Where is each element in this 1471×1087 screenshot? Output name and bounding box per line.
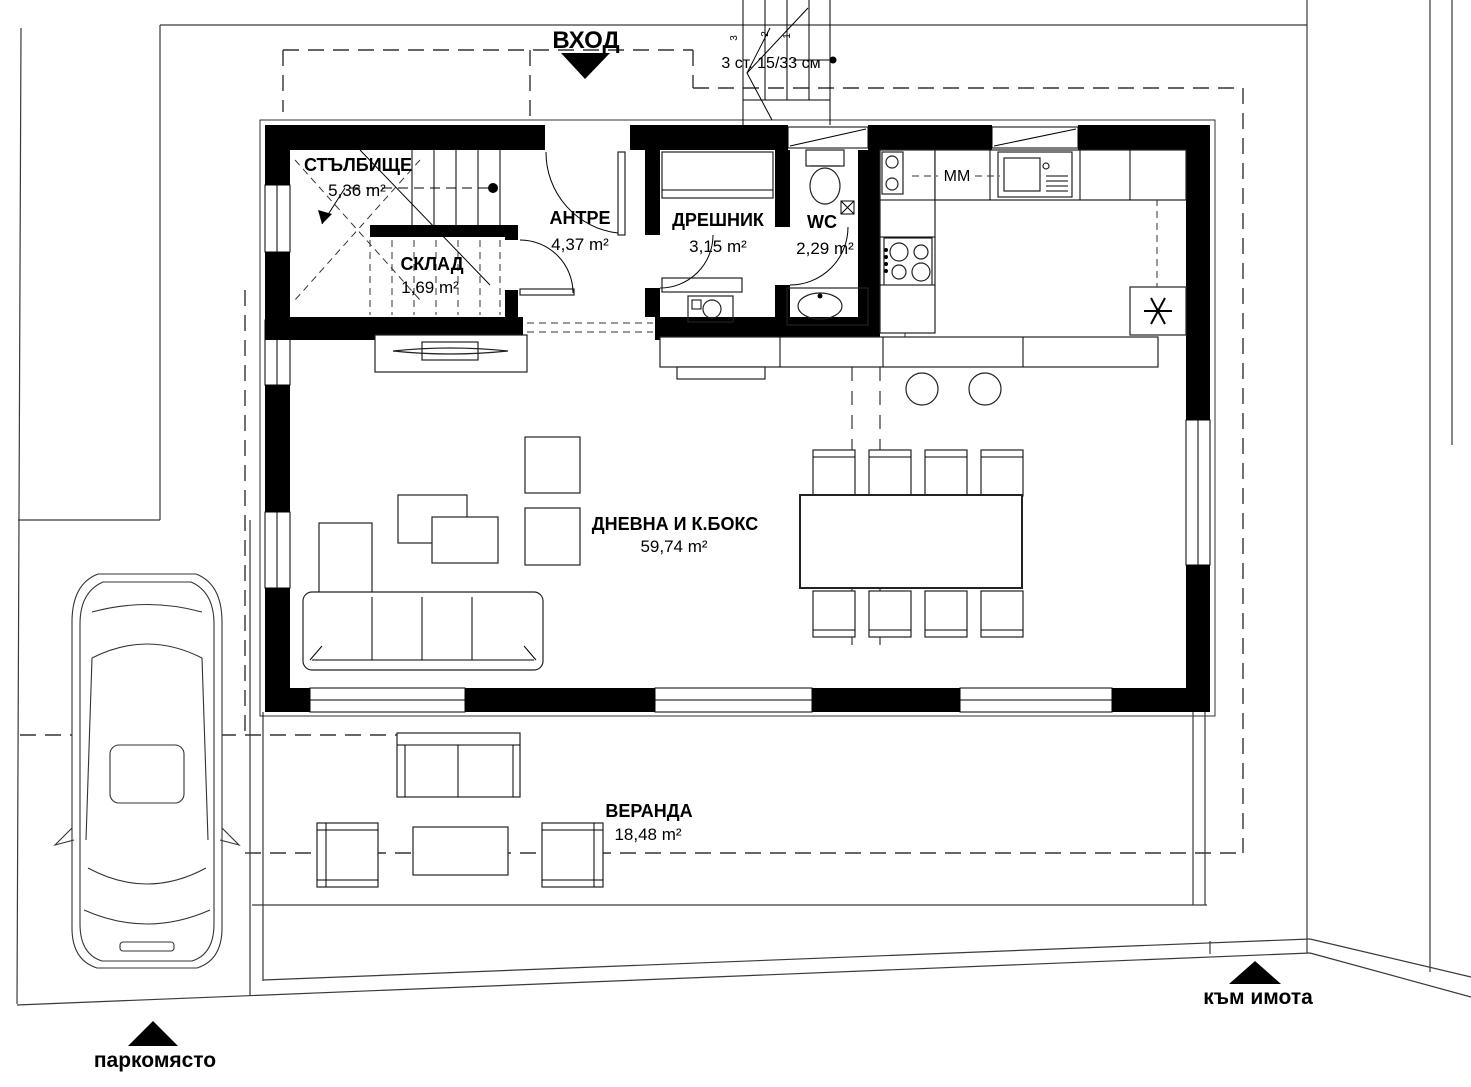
step-number: 2 xyxy=(760,31,771,37)
island-drawer xyxy=(677,367,765,379)
outdoor-armchair xyxy=(542,823,603,887)
wardrobe xyxy=(662,152,773,198)
room-stairwell-name: СТЪЛБИЩЕ xyxy=(304,155,412,175)
dining-chair xyxy=(813,591,855,637)
room-closet-name: ДРЕШНИК xyxy=(672,210,765,230)
step-number: 1 xyxy=(782,33,793,39)
closet-shelf xyxy=(662,278,742,292)
car-mirror xyxy=(220,828,239,845)
window-left-3 xyxy=(265,512,290,588)
bar-stool xyxy=(906,373,938,405)
room-veranda-area: 18,48 m² xyxy=(614,825,681,844)
dining-chair xyxy=(813,450,855,496)
toilet xyxy=(806,150,844,204)
room-storage-name: СКЛАД xyxy=(400,254,463,274)
tv-console xyxy=(375,335,527,372)
kitchen-mm-label: MM xyxy=(944,168,971,185)
parking-arrow-icon xyxy=(128,1021,178,1046)
room-hall-name: АНТРЕ xyxy=(549,208,610,228)
room-storage-area: 1,69 m² xyxy=(401,278,459,297)
dining-chair xyxy=(925,591,967,637)
car-mirror xyxy=(55,828,74,845)
dining-chair xyxy=(981,591,1023,637)
entrance-label: ВХОД xyxy=(552,27,619,54)
room-closet-area: 3,15 m² xyxy=(689,237,747,256)
room-living-name: ДНЕВНА И К.БОКС xyxy=(592,514,758,534)
bar-stool xyxy=(969,373,1001,405)
floor-plan-page: ВХОД 3 ст. 15/33 см 3 2 1 СТЪЛБИЩЕ 5,36 … xyxy=(0,0,1471,1087)
room-living-area: 59,74 m² xyxy=(640,537,707,556)
coffee-table xyxy=(432,517,498,563)
living-furniture xyxy=(303,335,580,670)
dining-table xyxy=(800,495,1022,588)
room-stairwell-area: 5,36 m² xyxy=(328,181,386,200)
outdoor-table xyxy=(413,827,508,875)
site-boundaries xyxy=(17,0,1471,1005)
dining-set xyxy=(800,450,1023,637)
car xyxy=(55,574,239,968)
leader-dot xyxy=(830,57,837,64)
parking-label: паркомясто xyxy=(94,1049,216,1072)
kitchen-island xyxy=(660,337,1158,379)
room-wc-area: 2,29 m² xyxy=(796,239,854,258)
dining-chair xyxy=(869,450,911,496)
outdoor-armchair xyxy=(317,823,378,887)
window-bottom-1 xyxy=(310,688,465,712)
pouf xyxy=(525,437,580,493)
dining-chair xyxy=(981,450,1023,496)
window-top-wc xyxy=(788,127,868,148)
to-property-arrow-icon xyxy=(1229,961,1281,984)
room-wc-name: WC xyxy=(807,212,837,232)
dining-chair xyxy=(925,450,967,496)
room-hall-area: 4,37 m² xyxy=(551,235,609,254)
sofa xyxy=(303,523,543,670)
vent-symbol-icon xyxy=(841,201,854,214)
pouf xyxy=(525,508,580,565)
dining-chair xyxy=(869,591,911,637)
to-property-label: към имота xyxy=(1203,986,1313,1009)
steps-note-label: 3 ст. 15/33 см xyxy=(721,55,820,72)
outdoor-sofa xyxy=(397,733,520,797)
step-number: 3 xyxy=(729,35,740,41)
sofa-chaise xyxy=(319,523,372,599)
window-left-1 xyxy=(265,185,290,252)
veranda xyxy=(317,712,1205,905)
room-veranda-name: ВЕРАНДА xyxy=(605,801,692,821)
wc-fixtures xyxy=(787,150,868,325)
stair-walk-start-dot xyxy=(488,183,498,193)
window-right xyxy=(1186,420,1210,565)
window-top-kitchen xyxy=(992,127,1078,148)
window-bottom-2 xyxy=(655,688,812,712)
window-bottom-3 xyxy=(960,688,1112,712)
entrance-arrow-icon xyxy=(561,53,610,79)
kitchen-counter-left xyxy=(880,150,935,333)
